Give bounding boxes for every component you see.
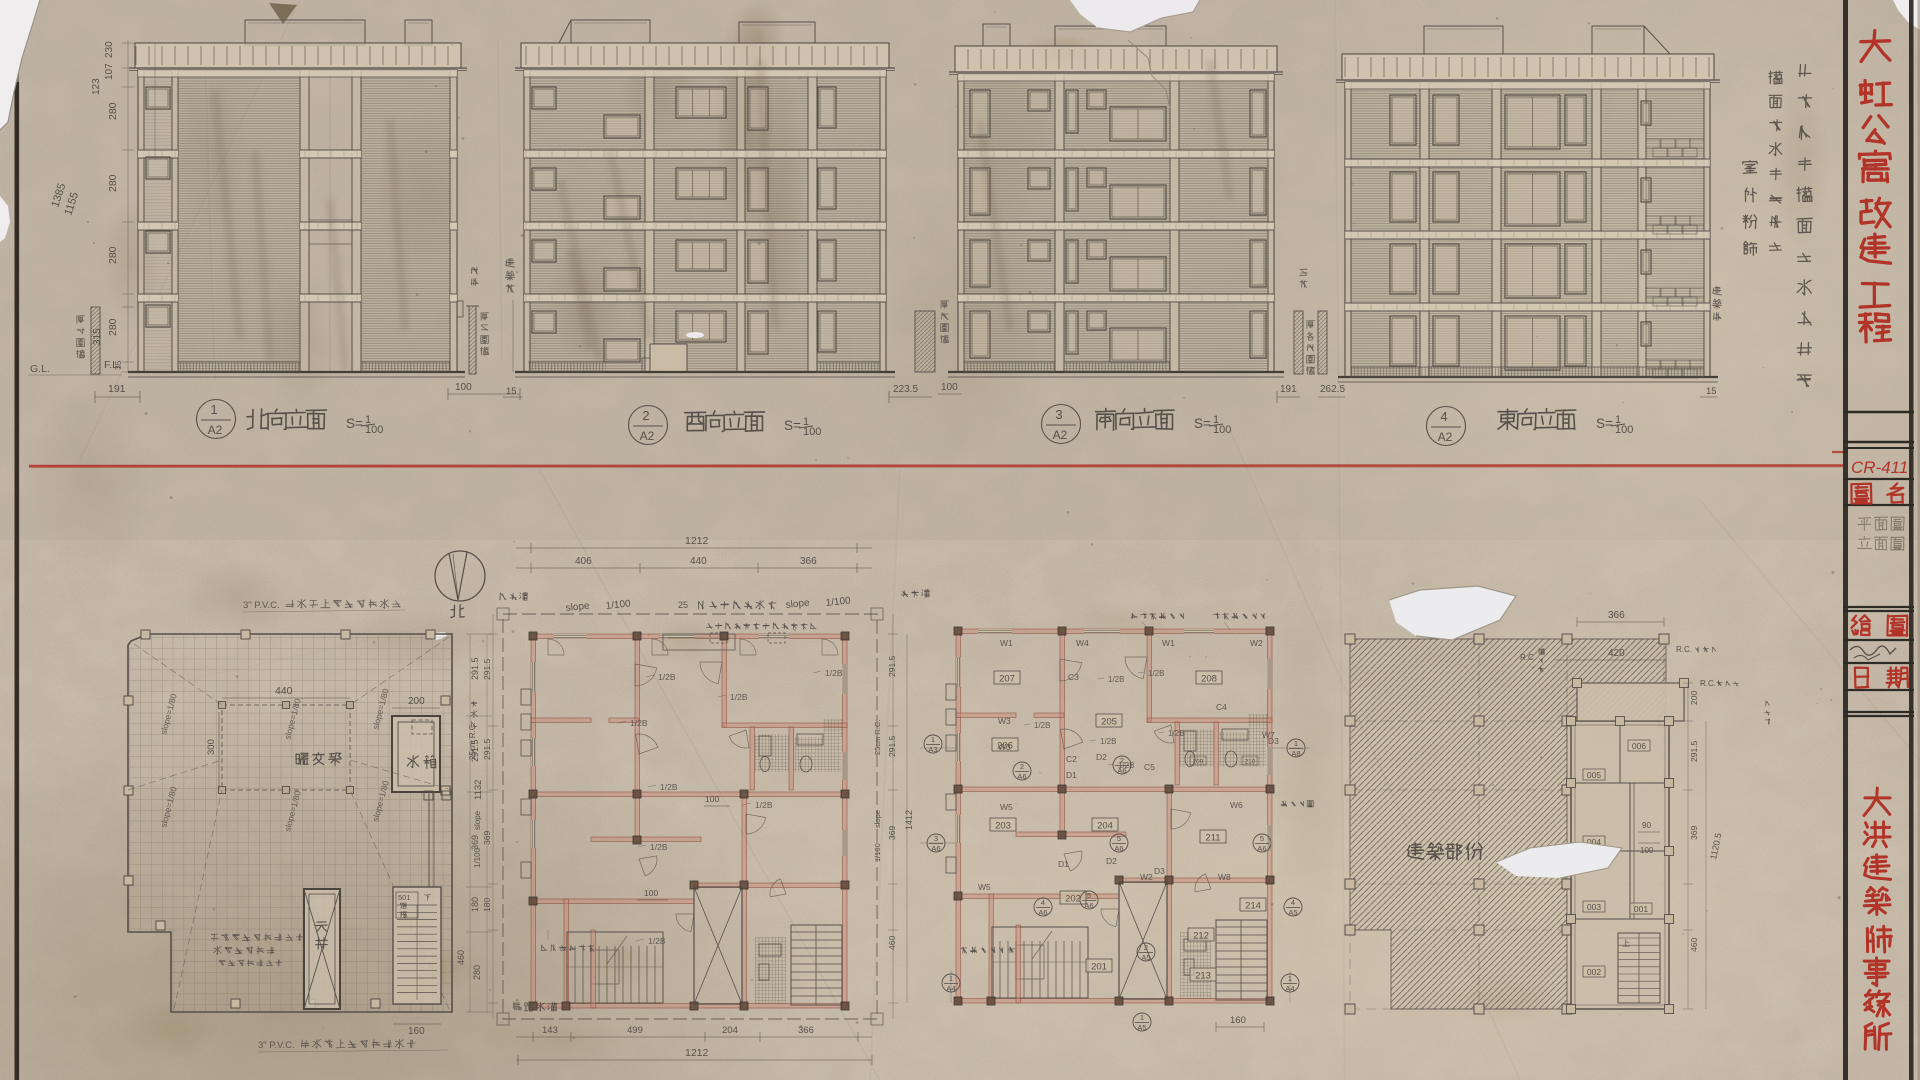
svg-text:C3: C3 (1068, 672, 1079, 682)
svg-text:2: 2 (642, 408, 649, 423)
svg-text:C2: C2 (1066, 754, 1077, 764)
svg-text:209: 209 (1193, 759, 1204, 766)
svg-text:W6: W6 (1230, 800, 1243, 810)
svg-text:460: 460 (456, 950, 466, 965)
svg-text:460: 460 (1689, 938, 1699, 952)
svg-text:100: 100 (1640, 846, 1654, 855)
svg-text:369: 369 (470, 835, 480, 850)
svg-text:90: 90 (1642, 821, 1651, 830)
svg-text:3" P.V.C.: 3" P.V.C. (258, 1040, 295, 1051)
svg-text:4: 4 (1291, 898, 1295, 907)
svg-text:W1: W1 (1162, 638, 1175, 648)
svg-text:1/2B: 1/2B (1034, 721, 1050, 730)
svg-text:460: 460 (887, 936, 897, 950)
svg-text:1: 1 (210, 402, 217, 417)
svg-text:1/2B: 1/2B (630, 718, 648, 728)
svg-text:211: 211 (1205, 833, 1220, 844)
svg-text:291.5: 291.5 (1689, 740, 1699, 762)
svg-text:D2: D2 (1106, 856, 1117, 866)
svg-text:3" P.V.C.: 3" P.V.C. (243, 600, 280, 611)
svg-text:203: 203 (995, 821, 1011, 832)
svg-text:123: 123 (91, 78, 102, 95)
svg-text:1/2B: 1/2B (755, 800, 773, 810)
svg-text:180: 180 (470, 897, 480, 912)
svg-text:100: 100 (1615, 424, 1633, 436)
svg-text:204: 204 (1097, 821, 1113, 832)
svg-text:W3: W3 (998, 716, 1011, 726)
svg-text:15: 15 (1706, 386, 1717, 397)
svg-text:2: 2 (1144, 943, 1148, 952)
svg-text:369: 369 (482, 831, 492, 845)
svg-text:D2: D2 (1096, 752, 1107, 762)
svg-text:15: 15 (506, 386, 517, 397)
svg-text:D3: D3 (1154, 866, 1165, 876)
svg-text:204: 204 (722, 1025, 738, 1036)
svg-text:S=: S= (1194, 416, 1211, 431)
svg-text:280: 280 (107, 318, 119, 336)
svg-text:W2: W2 (1140, 872, 1153, 882)
svg-text:366: 366 (1608, 610, 1625, 621)
svg-text:501: 501 (398, 893, 411, 902)
svg-text:F.L.: F.L. (104, 359, 121, 371)
svg-text:D1: D1 (1066, 770, 1077, 780)
svg-text:291.5: 291.5 (887, 735, 897, 757)
svg-text:A2: A2 (1053, 428, 1068, 442)
svg-text:25cm R.C.: 25cm R.C. (468, 722, 477, 760)
svg-text:440: 440 (690, 556, 707, 567)
svg-text:208: 208 (1201, 674, 1217, 685)
svg-text:223.5: 223.5 (893, 384, 918, 395)
svg-text:slope: slope (873, 810, 882, 828)
svg-text:230: 230 (104, 41, 115, 58)
svg-text:291.5: 291.5 (482, 658, 492, 680)
svg-text:291.5: 291.5 (887, 655, 897, 677)
svg-text:上: 上 (1622, 939, 1630, 948)
svg-text:CR-411: CR-411 (1851, 458, 1908, 477)
svg-text:1132: 1132 (473, 780, 484, 800)
svg-text:S=: S= (784, 418, 801, 433)
svg-text:369: 369 (887, 826, 897, 840)
svg-text:291.5: 291.5 (470, 657, 480, 680)
svg-text:A6: A6 (1038, 908, 1047, 917)
svg-text:A6: A6 (1257, 844, 1266, 853)
svg-text:2: 2 (1020, 762, 1024, 771)
svg-text:002: 002 (1587, 967, 1601, 977)
svg-text:315: 315 (92, 328, 103, 345)
svg-text:A8: A8 (1291, 749, 1300, 758)
svg-text:slope: slope (473, 810, 482, 830)
svg-text:1/2B: 1/2B (1100, 737, 1116, 746)
svg-text:499: 499 (627, 1025, 643, 1036)
svg-text:4: 4 (1041, 898, 1045, 907)
svg-text:1: 1 (931, 735, 935, 744)
svg-text:W8: W8 (1218, 872, 1231, 882)
svg-text:1212: 1212 (685, 535, 709, 547)
svg-text:420: 420 (1608, 648, 1625, 659)
svg-text:W3: W3 (998, 742, 1011, 752)
svg-text:280: 280 (107, 174, 119, 192)
svg-text:006: 006 (1632, 741, 1646, 751)
svg-text:100: 100 (1213, 424, 1231, 436)
svg-text:191: 191 (108, 383, 126, 395)
svg-text:D1: D1 (1058, 859, 1069, 869)
svg-text:4: 4 (1440, 409, 1447, 424)
svg-text:1: 1 (1294, 739, 1298, 748)
svg-text:1/2B: 1/2B (650, 842, 668, 852)
svg-text:1/2B: 1/2B (825, 668, 843, 678)
svg-text:213: 213 (1195, 971, 1211, 982)
svg-text:100: 100 (803, 426, 821, 438)
svg-text:R.C.: R.C. (1520, 653, 1536, 662)
svg-text:A2: A2 (208, 423, 223, 437)
svg-text:280: 280 (107, 102, 119, 120)
svg-text:1/2B: 1/2B (658, 672, 676, 682)
svg-text:1/2B: 1/2B (1168, 729, 1184, 738)
svg-text:160: 160 (408, 1026, 425, 1037)
svg-text:300: 300 (206, 739, 217, 755)
svg-text:201: 201 (1091, 962, 1107, 973)
svg-text:S=: S= (346, 416, 363, 431)
svg-text:25: 25 (678, 600, 688, 610)
svg-text:W5: W5 (1000, 802, 1013, 812)
svg-text:A2: A2 (640, 429, 655, 443)
svg-text:S=: S= (1596, 416, 1613, 431)
svg-text:1/2B: 1/2B (730, 692, 748, 702)
svg-text:W5: W5 (978, 882, 991, 892)
svg-text:406: 406 (575, 556, 592, 567)
svg-text:001: 001 (1634, 904, 1648, 914)
svg-text:G.L.: G.L. (30, 363, 50, 375)
svg-text:D3: D3 (1268, 736, 1279, 746)
svg-text:A6: A6 (931, 844, 940, 853)
svg-text:25cm R.C.: 25cm R.C. (873, 720, 882, 755)
svg-text:2: 2 (1120, 756, 1124, 765)
svg-text:200: 200 (1689, 691, 1699, 705)
svg-text:A6: A6 (1017, 772, 1026, 781)
svg-text:210: 210 (1245, 759, 1256, 766)
svg-text:143: 143 (542, 1025, 558, 1036)
svg-text:W4: W4 (1076, 638, 1089, 648)
svg-text:212: 212 (1193, 931, 1209, 942)
svg-text:C5: C5 (1144, 762, 1155, 772)
svg-text:A2: A2 (1438, 430, 1453, 444)
svg-text:100: 100 (644, 888, 658, 898)
svg-text:A3: A3 (928, 745, 937, 754)
svg-text:A5: A5 (1137, 1023, 1146, 1032)
svg-text:5: 5 (1117, 834, 1121, 843)
svg-text:1/100: 1/100 (473, 847, 482, 868)
svg-text:100: 100 (455, 382, 472, 393)
svg-text:A5: A5 (1141, 953, 1150, 962)
svg-text:366: 366 (800, 556, 817, 567)
svg-text:191: 191 (1280, 384, 1297, 395)
svg-text:280: 280 (107, 246, 119, 264)
svg-text:291.5: 291.5 (482, 738, 492, 760)
svg-text:005: 005 (1587, 770, 1601, 780)
svg-text:A5: A5 (1288, 908, 1297, 917)
svg-text:A6: A6 (1084, 901, 1093, 910)
svg-text:1/2B: 1/2B (648, 936, 666, 946)
svg-text:100: 100 (705, 794, 719, 804)
svg-text:262.5: 262.5 (1320, 384, 1345, 395)
svg-text:3: 3 (1055, 407, 1062, 422)
svg-text:1212: 1212 (685, 1047, 709, 1059)
svg-text:C4: C4 (1216, 702, 1227, 712)
svg-text:100: 100 (941, 382, 958, 393)
svg-text:280: 280 (472, 965, 482, 980)
svg-text:W1: W1 (1000, 638, 1013, 648)
svg-text:205: 205 (1101, 717, 1117, 728)
svg-text:R.C.: R.C. (1700, 679, 1716, 688)
svg-text:1412: 1412 (904, 810, 914, 830)
svg-text:5: 5 (1087, 891, 1091, 900)
svg-text:440: 440 (275, 685, 293, 697)
svg-text:A6: A6 (1117, 766, 1126, 775)
svg-text:1/2B: 1/2B (660, 782, 678, 792)
svg-text:W2: W2 (1250, 638, 1263, 648)
svg-text:1/2B: 1/2B (1108, 675, 1124, 684)
svg-text:1/2B: 1/2B (1148, 669, 1164, 678)
svg-text:003: 003 (1587, 902, 1601, 912)
svg-text:1/100: 1/100 (873, 843, 882, 862)
svg-text:1: 1 (1140, 1013, 1144, 1022)
svg-text:214: 214 (1245, 901, 1261, 912)
svg-text:369: 369 (1689, 826, 1699, 840)
svg-text:107: 107 (104, 63, 115, 80)
svg-text:A6: A6 (1114, 844, 1123, 853)
svg-text:200: 200 (408, 696, 425, 707)
svg-text:R.C.: R.C. (1676, 645, 1692, 654)
svg-text:207: 207 (999, 674, 1015, 685)
svg-text:5: 5 (1260, 834, 1264, 843)
svg-text:202: 202 (1065, 894, 1081, 905)
svg-text:3: 3 (934, 834, 938, 843)
svg-text:180: 180 (482, 898, 492, 912)
svg-text:100: 100 (365, 424, 383, 436)
svg-text:160: 160 (1230, 1015, 1246, 1026)
